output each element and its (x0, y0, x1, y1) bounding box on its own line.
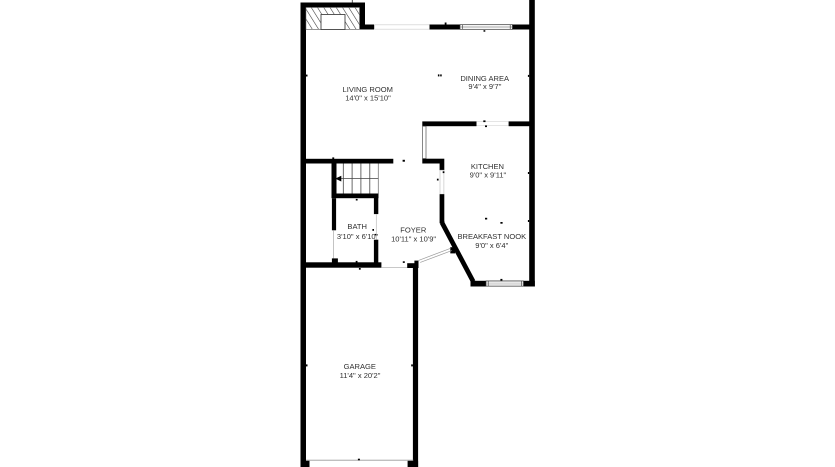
svg-text:10'11" x 10'9": 10'11" x 10'9" (391, 234, 436, 243)
svg-text:3'10" x 6'10": 3'10" x 6'10" (337, 232, 379, 241)
svg-text:14'0" x 15'10": 14'0" x 15'10" (345, 93, 391, 102)
svg-text:9'0" x 9'11": 9'0" x 9'11" (470, 171, 507, 180)
svg-text:9'0" x 6'4": 9'0" x 6'4" (475, 241, 508, 250)
svg-text:GARAGE: GARAGE (344, 362, 376, 371)
svg-text:FOYER: FOYER (400, 225, 427, 234)
svg-text:BATH: BATH (347, 222, 367, 231)
svg-text:11'4" x 20'2": 11'4" x 20'2" (340, 371, 381, 380)
svg-text:9'4" x 9'7": 9'4" x 9'7" (468, 82, 501, 91)
